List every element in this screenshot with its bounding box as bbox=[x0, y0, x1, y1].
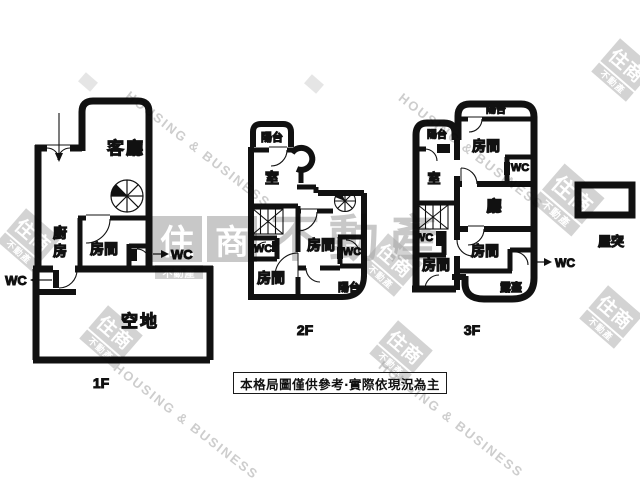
label-floor-3f: 3F bbox=[464, 322, 481, 338]
disclaimer-box: 本格局圖僅供參考‧實際依現況為主 bbox=[233, 372, 447, 394]
roof-protrusion: 屋突 bbox=[578, 185, 632, 249]
stairs-icon-2f bbox=[253, 209, 283, 234]
wc-arrow-3f-icon bbox=[544, 258, 552, 266]
label-bedroom-mid-2f: 房間 bbox=[307, 237, 335, 253]
label-wc-left-3f: WC bbox=[415, 232, 433, 244]
floorplan-2f: 陽台 室 WC 房間 WC 房間 陽台 2F bbox=[248, 124, 364, 338]
label-bedroom-bottom-3f: 房間 bbox=[422, 257, 450, 273]
label-yard: 空地 bbox=[121, 311, 159, 331]
floor-plan-page: 客廳 廚 房 房間 WC WC 空地 1F bbox=[0, 0, 640, 480]
label-balcony-bottom-2f: 陽台 bbox=[338, 280, 360, 294]
floorplan-3f: 陽台 陽台 房間 WC 室 廳 WC 房間 房間 露臺 WC 3F bbox=[412, 103, 575, 338]
label-bedroom-bottom-2f: 房間 bbox=[257, 270, 285, 286]
label-wc-inner-1f: WC bbox=[171, 247, 193, 262]
label-wc-outer-1f: WC bbox=[5, 273, 27, 288]
label-bedroom-1f: 房間 bbox=[90, 241, 118, 257]
label-room-3f: 室 bbox=[427, 171, 440, 186]
label-hall-3f: 廳 bbox=[486, 197, 501, 215]
floor-plan-canvas: 客廳 廚 房 房間 WC WC 空地 1F bbox=[0, 0, 640, 480]
label-wc-right-2f: WC bbox=[343, 246, 361, 258]
label-kitchen-2: 房 bbox=[53, 243, 67, 259]
label-balcony-top-2f: 陽台 bbox=[261, 130, 283, 144]
label-kitchen-1: 廚 bbox=[53, 225, 67, 241]
label-balcony-top-3f: 陽台 bbox=[486, 103, 506, 116]
label-wc-top-3f: WC bbox=[511, 162, 529, 174]
label-terrace-3f: 露臺 bbox=[500, 280, 522, 294]
label-floor-1f: 1F bbox=[93, 375, 110, 391]
wc-arrow-right-icon bbox=[161, 250, 169, 258]
label-balcony-left-3f: 陽台 bbox=[427, 128, 447, 141]
stairs-icon-3f bbox=[418, 205, 448, 229]
floorplan-1f: 客廳 廚 房 房間 WC WC 空地 1F bbox=[5, 101, 213, 391]
spiral-stair-icon-2f bbox=[335, 191, 356, 212]
label-roof: 屋突 bbox=[598, 234, 624, 249]
label-room-2f: 室 bbox=[265, 170, 279, 186]
spiral-stair-icon bbox=[111, 180, 143, 212]
label-wc-out-3f: WC bbox=[555, 256, 575, 270]
disclaimer-text: 本格局圖僅供參考‧實際依現況為主 bbox=[240, 374, 440, 393]
label-living-room: 客廳 bbox=[106, 138, 145, 158]
label-bedroom-mid-3f: 房間 bbox=[471, 243, 499, 259]
label-floor-2f: 2F bbox=[297, 322, 314, 338]
label-wc-left-2f: WC bbox=[254, 243, 272, 255]
label-bedroom-top-3f: 房間 bbox=[472, 138, 500, 154]
entry-arrow-icon bbox=[55, 153, 63, 162]
